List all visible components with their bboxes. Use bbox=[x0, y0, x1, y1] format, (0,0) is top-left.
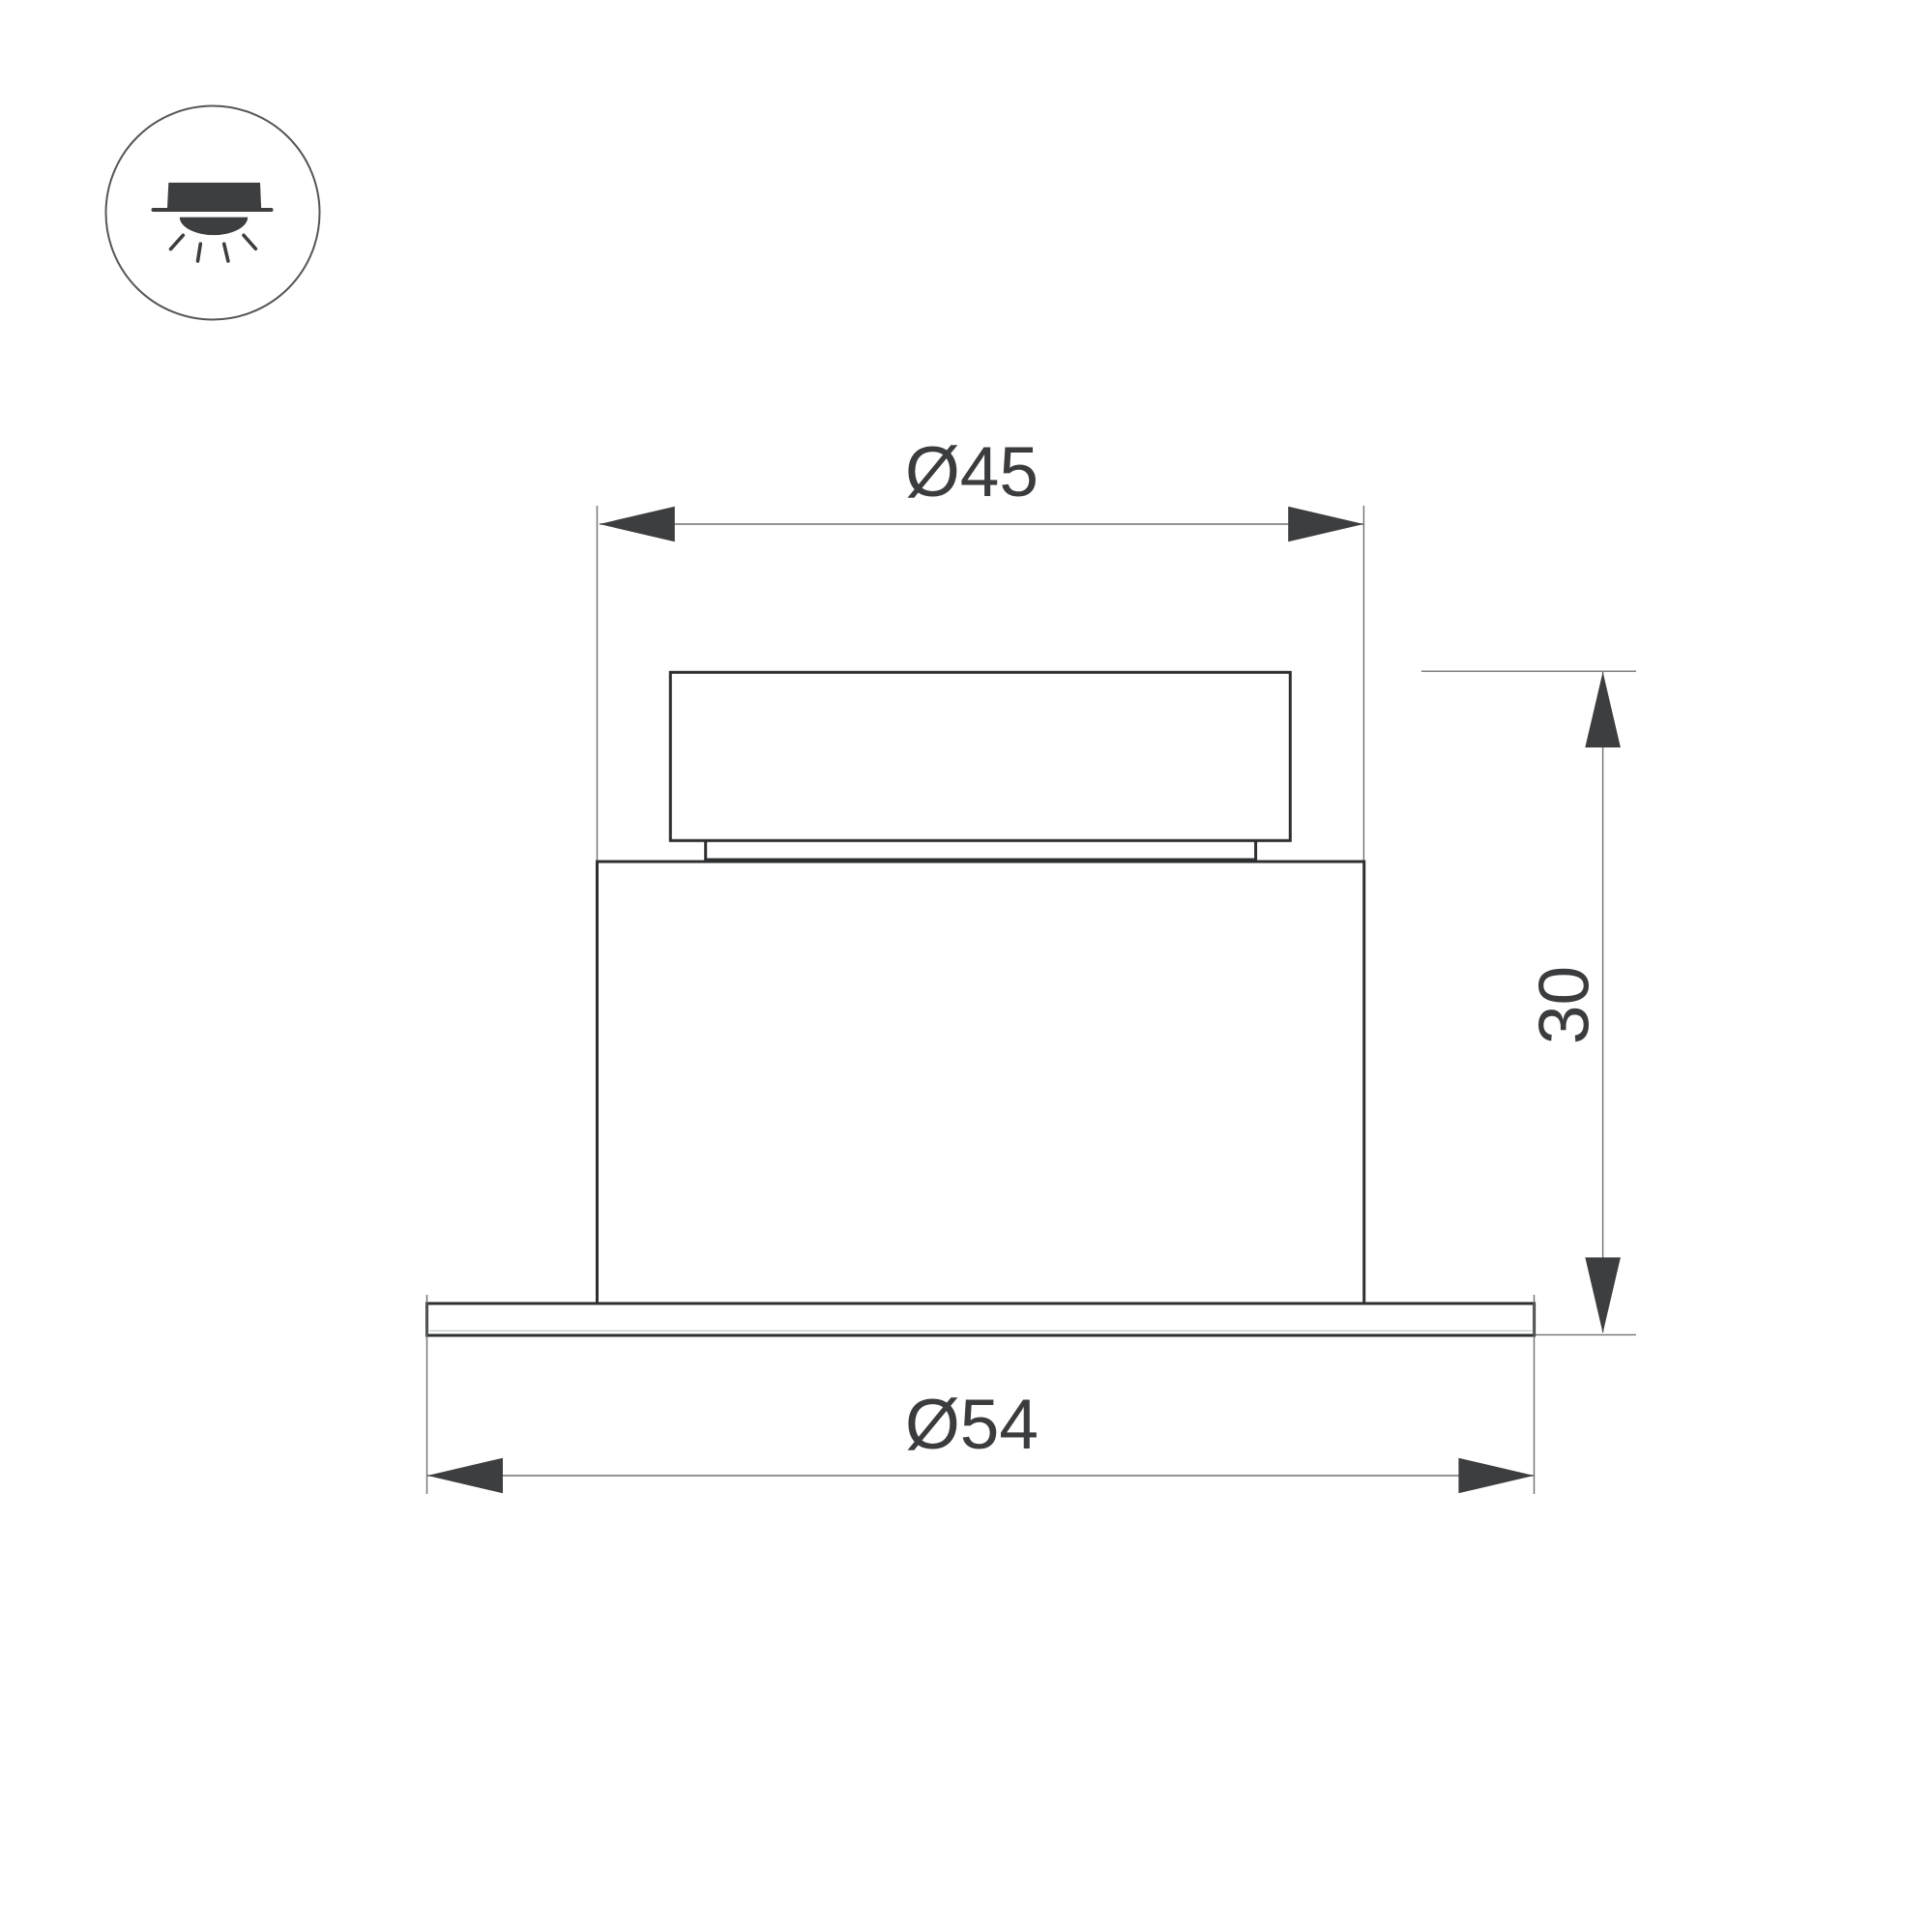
svg-text:Ø45: Ø45 bbox=[905, 433, 1039, 512]
svg-text:Ø54: Ø54 bbox=[905, 1386, 1039, 1464]
svg-text:30: 30 bbox=[1526, 966, 1604, 1044]
